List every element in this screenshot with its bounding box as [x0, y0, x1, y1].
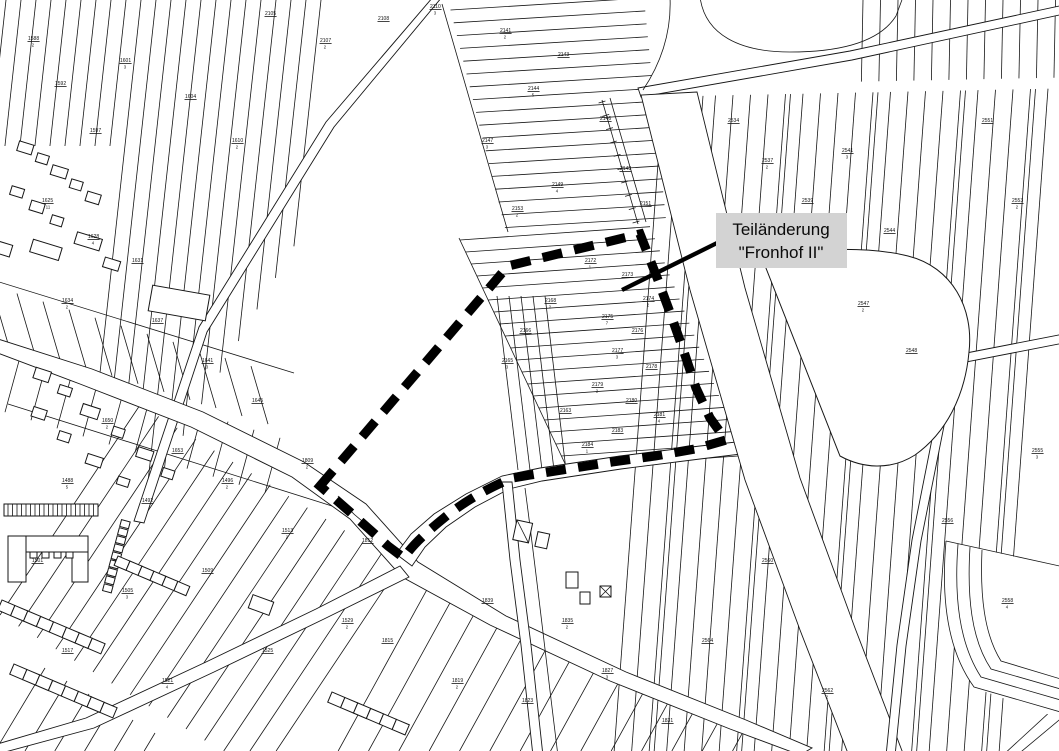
garage: [105, 576, 116, 585]
parcel-denominator: 2: [596, 388, 599, 393]
parcel-number-label: 2178: [646, 364, 658, 370]
parcel-number-label: 1823: [522, 698, 534, 704]
building-cluster-north: [0, 141, 146, 289]
cadastral-map: 2105210722108211031592160131604161021597…: [0, 0, 1059, 751]
parcel-number-label: 25372: [762, 158, 774, 169]
parcel-number-label: 2163: [560, 408, 572, 414]
parking-outline: [4, 504, 98, 516]
strip-line: [454, 11, 646, 23]
parcel-number-label: 1637: [152, 318, 164, 324]
parcel-number-label: 2176: [632, 328, 644, 334]
strip-line: [483, 127, 657, 138]
parcel-denominator: 2: [566, 624, 569, 629]
road-southwest: [0, 566, 409, 751]
parcel-number-label: 14885: [62, 478, 74, 489]
parcel-denominator: 3: [434, 10, 437, 15]
large-parcels-right: [762, 249, 1059, 720]
strip-line: [65, 0, 81, 146]
building: [116, 476, 130, 487]
parcel-denominator: 4: [556, 188, 559, 193]
parcel-number-label: 1812: [362, 538, 374, 544]
parcel-number-label: 2560: [762, 558, 774, 564]
strip-line-above-road: [949, 0, 951, 80]
strip-line: [35, 0, 51, 146]
garage-column: [103, 520, 131, 593]
parcel-number-label: 2108: [378, 16, 390, 22]
parcel-number-label: 2556: [942, 518, 954, 524]
parcel-number-label: 1492: [142, 498, 154, 504]
strip-line: [220, 0, 261, 373]
parcel-number-label: 2166: [520, 328, 532, 334]
lot-line: [69, 310, 86, 368]
parcel-number-label: 21841: [582, 442, 594, 453]
strip-line: [202, 0, 246, 404]
strip-line: [476, 101, 654, 112]
garage: [107, 568, 118, 577]
parcel-number-label: 21814: [654, 412, 666, 423]
lot-line: [225, 358, 242, 416]
parcel-number-label: 25413: [842, 148, 854, 159]
building: [85, 191, 101, 205]
parcel-number-label: 16102: [232, 138, 244, 149]
strip-line-above-road: [966, 0, 968, 79]
corner-road-line: [1016, 716, 1059, 751]
parcel-number-label: 16413: [202, 358, 214, 369]
lot-line: [5, 357, 20, 412]
strip-line-above-road: [861, 0, 863, 82]
field-edge: [442, 4, 508, 232]
parcel-denominator: 2: [766, 164, 769, 169]
annotation-label-line2: "Fronhof II": [739, 243, 824, 262]
strip-line: [551, 665, 598, 751]
building-misc: [248, 595, 273, 616]
parcel-denominator: 2: [226, 484, 229, 489]
parcel-number-label: 2151: [640, 201, 652, 207]
strip-line: [460, 37, 648, 49]
parcel-number-label: 2148: [620, 166, 632, 172]
strip-line: [581, 676, 622, 751]
strip-line-above-road: [1019, 0, 1021, 78]
building-wing: [8, 536, 26, 582]
road-northwest-curved: [134, 0, 442, 523]
building: [57, 384, 72, 397]
parcel-denominator: 2: [286, 534, 289, 539]
strip-line: [479, 114, 655, 125]
strip-line: [505, 218, 666, 228]
annotation-label: Teiländerung "Fronhof II": [716, 213, 847, 268]
strip-line: [492, 166, 661, 176]
strip-line: [429, 619, 502, 751]
parcel-number-label: 1501: [32, 558, 44, 564]
building: [30, 239, 62, 260]
building: [57, 431, 71, 443]
parcel-number-label: 21742: [643, 296, 655, 307]
strip-line: [74, 451, 214, 661]
field-strips-top-center: [451, 0, 666, 228]
building: [17, 141, 34, 155]
lot-line: [95, 318, 112, 376]
strip-line: [20, 0, 36, 146]
building: [50, 215, 64, 227]
parcel-number-label: 1509: [202, 568, 214, 574]
strip-line: [275, 0, 306, 278]
parcel-number-label: 15132: [282, 528, 294, 539]
rounded-parcel-bottom-right-fill: [944, 541, 1059, 720]
strip-line: [144, 733, 155, 751]
lot-line: [251, 366, 268, 424]
parcel-denominator: 2: [346, 624, 349, 629]
strip-line: [489, 153, 659, 164]
parcel-denominator: 4: [658, 418, 661, 423]
building: [248, 595, 273, 616]
parcel-denominator: 3: [206, 364, 209, 369]
strip-line: [50, 0, 66, 146]
building: [102, 257, 120, 271]
parcel-number-label: 2105: [265, 11, 277, 17]
garage: [115, 536, 126, 545]
parcel-denominator: 3: [616, 354, 619, 359]
parcel-denominator: 11: [46, 204, 51, 209]
apartment-u-block: [8, 536, 88, 582]
parcel-number-label: 21773: [612, 348, 624, 359]
parcel-number-label: 1604: [185, 94, 197, 100]
lot-line: [0, 285, 8, 343]
strip-line: [451, 0, 645, 10]
strip-line-above-road: [984, 0, 986, 79]
parcel-denominator: 2: [647, 302, 650, 307]
parcel-denominator: 3: [486, 144, 489, 149]
parcel-denominator: 3: [506, 364, 509, 369]
strip-line: [672, 711, 694, 751]
building: [85, 453, 103, 467]
lot-line: [43, 302, 60, 360]
parcel-number-label: 1525: [262, 648, 274, 654]
building: [31, 406, 47, 420]
parcel-number-label: 1631: [132, 258, 144, 264]
strip-line: [522, 359, 704, 372]
ramp-curve: [700, 0, 903, 52]
parcel-number-label: 15053: [122, 588, 134, 599]
balcony: [54, 552, 61, 558]
strip-line-above-road: [879, 0, 881, 81]
strip-line: [114, 720, 133, 751]
strip-line: [238, 0, 276, 341]
strip-line: [505, 323, 689, 336]
parcel-denominator: 2: [324, 44, 327, 49]
parcel-number-label: 2544: [884, 228, 896, 234]
strip-line-above-road: [1001, 0, 1003, 79]
row-houses: [0, 600, 105, 654]
parcel-number-label: 16342: [62, 298, 74, 309]
parcel-number-label: 2551: [982, 118, 994, 124]
strip-line: [0, 0, 6, 146]
strip-line: [550, 420, 728, 432]
building: [80, 404, 101, 420]
strip-line: [702, 722, 718, 751]
parcel-denominator: 3: [126, 594, 129, 599]
parcel-number-label: 2183: [612, 428, 624, 434]
parcel-denominator: 7: [606, 320, 609, 325]
parking-strip: [4, 504, 98, 516]
parcel-number-label: 1592: [55, 81, 67, 87]
building: [161, 467, 175, 479]
building: [69, 179, 83, 191]
strip-line: [470, 76, 652, 87]
road-top-right: [638, 5, 1059, 97]
strip-line: [533, 296, 554, 470]
tick-mark: [633, 221, 640, 223]
garage: [118, 528, 129, 537]
strip-line: [463, 50, 649, 62]
building-wing: [26, 536, 88, 552]
parcel-number-label: 25553: [1032, 448, 1044, 459]
tick-mark: [625, 194, 632, 196]
parcel-number-label: 21072: [320, 38, 332, 49]
building: [566, 572, 578, 588]
parcel-denominator: 2: [66, 304, 69, 309]
strip-line: [516, 347, 699, 360]
building-hall: [148, 285, 210, 321]
parcel-number-label: 16013: [120, 58, 132, 69]
strip-line: [497, 296, 518, 470]
strip-line: [467, 63, 651, 74]
parcel-number-label: 15882: [28, 36, 40, 47]
parcel-number-label: 21653: [502, 358, 514, 369]
parcel-number-label: 16502: [102, 418, 114, 429]
building: [535, 532, 550, 549]
parcel-number-label: 2180: [626, 398, 638, 404]
parcel-number-label: 1653: [172, 448, 184, 454]
annotation-label-line1: Teiländerung: [732, 220, 829, 239]
parcel-number-label: 2534: [728, 118, 740, 124]
parcel-number-label: 2173: [622, 272, 634, 278]
parcel-number-label: 18352: [562, 618, 574, 629]
strip-line: [495, 179, 662, 189]
strip-line: [257, 0, 291, 309]
ramp-curve: [643, 0, 670, 90]
parcel-denominator: 5: [532, 92, 535, 97]
strip-line: [533, 383, 714, 396]
lot-line: [17, 294, 34, 352]
garage: [113, 544, 124, 553]
strip-line: [95, 0, 111, 146]
building-wing: [72, 552, 88, 582]
building-large: [148, 285, 210, 321]
parcel-number-label: 2146: [600, 116, 612, 122]
parcel-number-label: 1815: [382, 638, 394, 644]
parcel-number-label: 1517: [62, 648, 74, 654]
tick-mark: [606, 128, 613, 130]
parcel-number-label: 21412: [500, 28, 512, 39]
parcel-denominator: 2: [549, 304, 552, 309]
parcel-number-label: 21494: [552, 182, 564, 193]
parcel-denominator: 2: [504, 34, 507, 39]
strip-line: [130, 485, 270, 695]
parcel-number-label: 1831: [662, 718, 674, 724]
strip-line: [5, 0, 21, 146]
building: [0, 239, 13, 257]
strip-line: [473, 88, 653, 99]
parcel-number-label: 1645: [252, 398, 264, 404]
parcel-number-label: 2548: [906, 348, 918, 354]
strip-line: [110, 0, 126, 146]
parcel-denominator: 2: [516, 212, 519, 217]
building: [10, 186, 25, 198]
strip-line: [80, 0, 96, 146]
parcel-number-label: 14962: [222, 478, 234, 489]
parcel-number-label: 21103: [430, 4, 442, 15]
parcel-denominator: 2: [32, 42, 35, 47]
parcel-denominator: 1: [589, 264, 592, 269]
parcel-number-label: 18192: [452, 678, 464, 689]
building: [35, 153, 49, 165]
parcel-number-label: 21532: [512, 206, 524, 217]
garage: [120, 520, 131, 529]
parcel-denominator: 2: [106, 424, 109, 429]
building: [111, 426, 125, 438]
strip-line: [460, 630, 526, 751]
parcel-number-label: 1597: [90, 128, 102, 134]
parcel-number-label: 2539: [802, 198, 814, 204]
strip-line: [165, 0, 216, 467]
parcel-denominator: 3: [124, 64, 127, 69]
parcel-number-label: 2564: [702, 638, 714, 644]
plan-area-dashed-boundary: [320, 234, 726, 558]
cadastral-map-page: 2105210722108211031592160131604161021597…: [0, 0, 1059, 751]
tick-mark: [629, 208, 636, 210]
parcel-number-label: 1839: [482, 598, 494, 604]
strip-line: [294, 0, 321, 246]
strip-line: [457, 24, 647, 36]
building: [580, 592, 590, 604]
parcel-denominator: 5: [66, 484, 69, 489]
parcel-denominator: 3: [846, 154, 849, 159]
balcony: [66, 552, 73, 558]
building: [50, 165, 68, 179]
parcel-number-label: 2143: [558, 52, 570, 58]
road-east-connector: [956, 334, 1059, 364]
strip-line: [471, 251, 660, 264]
road-along-plan-boundary: [396, 438, 774, 566]
row-houses: [10, 664, 117, 718]
parcel-denominator: 2: [1016, 204, 1019, 209]
strip-line: [499, 311, 684, 324]
strip-line: [477, 263, 665, 276]
parcel-number-label: 15292: [342, 618, 354, 629]
parcel-denominator: 2: [456, 684, 459, 689]
parcel-denominator: 3: [1036, 454, 1039, 459]
parcel-number-label: 21757: [602, 314, 614, 325]
parcel-denominator: 1: [586, 448, 589, 453]
parcel-denominator: 2: [236, 144, 239, 149]
strip-line: [486, 140, 658, 151]
strip-line: [399, 607, 478, 751]
garage: [103, 584, 114, 593]
buildings: [0, 141, 611, 735]
buildings-by-vertical-road: [566, 572, 611, 604]
